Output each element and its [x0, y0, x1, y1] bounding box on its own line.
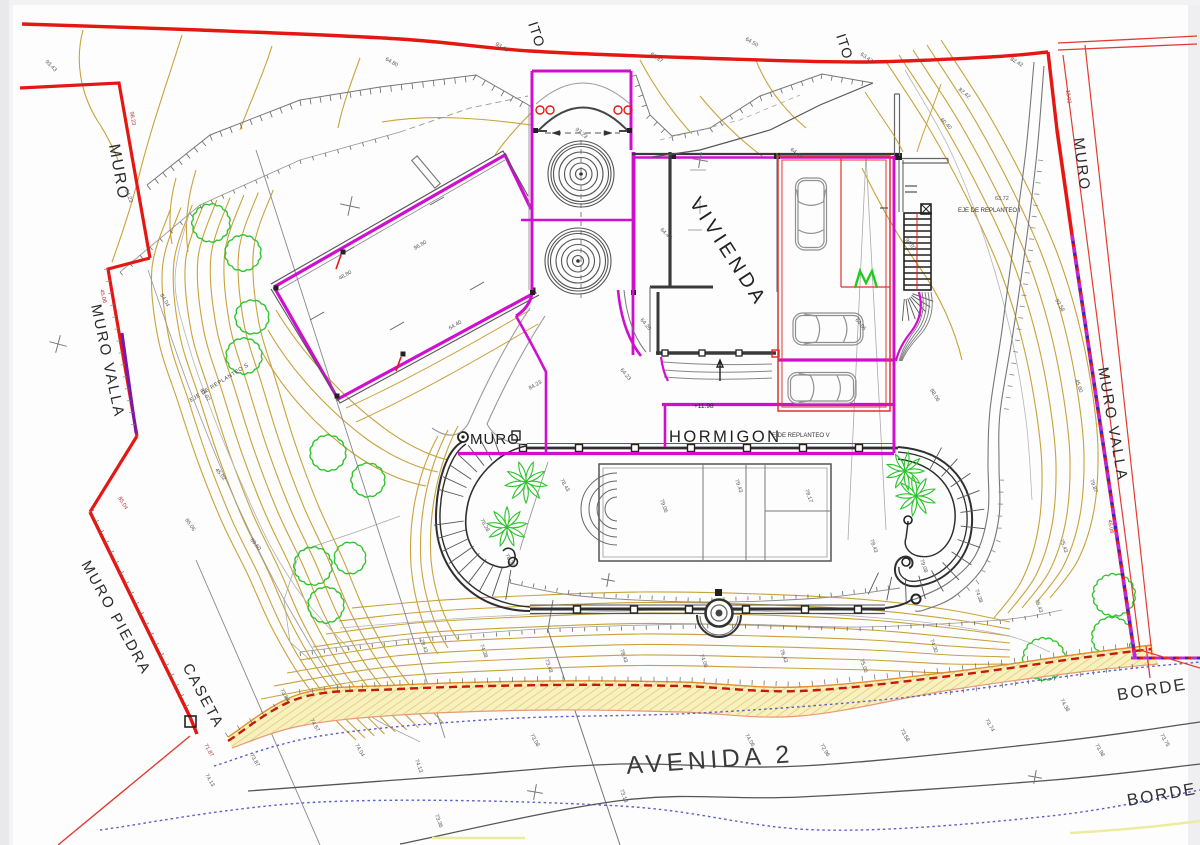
svg-text:EJE DE REPLANTEO I: EJE DE REPLANTEO I	[958, 208, 1021, 214]
svg-text:+11.98: +11.98	[694, 403, 714, 410]
svg-text:63.72: 63.72	[995, 196, 1009, 202]
svg-text:E DE REPLANTEO V: E DE REPLANTEO V	[772, 433, 830, 439]
svg-text:HORMIGON: HORMIGON	[669, 428, 782, 446]
